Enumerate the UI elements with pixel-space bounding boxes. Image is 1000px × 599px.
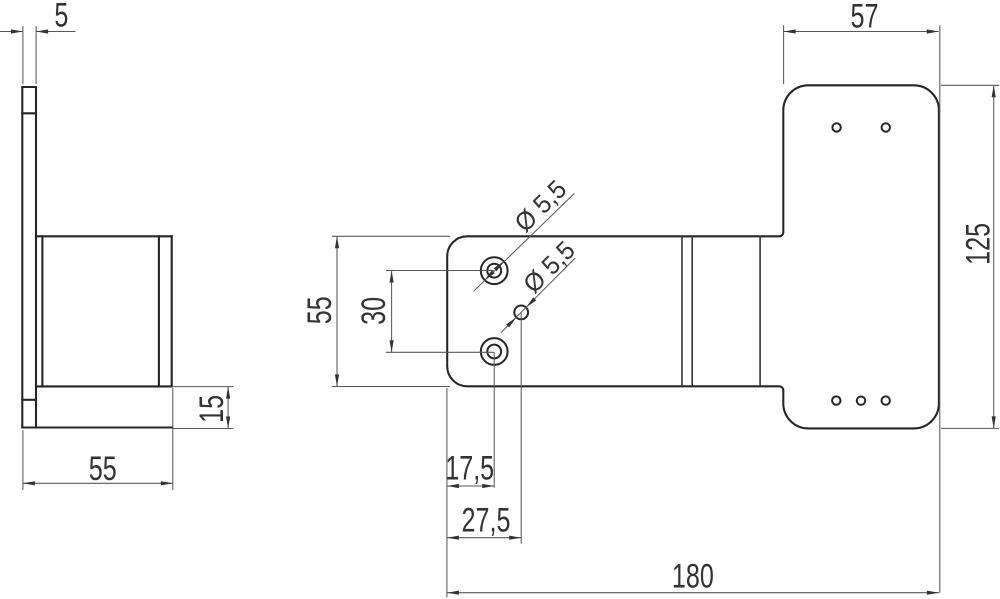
svg-text:17,5: 17,5 xyxy=(445,450,494,488)
svg-text:27,5: 27,5 xyxy=(462,502,511,540)
svg-text:55: 55 xyxy=(301,296,339,324)
svg-text:30: 30 xyxy=(355,297,393,325)
svg-text:15: 15 xyxy=(193,395,231,423)
svg-text:125: 125 xyxy=(960,223,998,265)
svg-text:180: 180 xyxy=(672,558,714,596)
svg-text:55: 55 xyxy=(89,451,117,489)
svg-text:5: 5 xyxy=(54,0,68,35)
svg-text:57: 57 xyxy=(851,0,879,36)
